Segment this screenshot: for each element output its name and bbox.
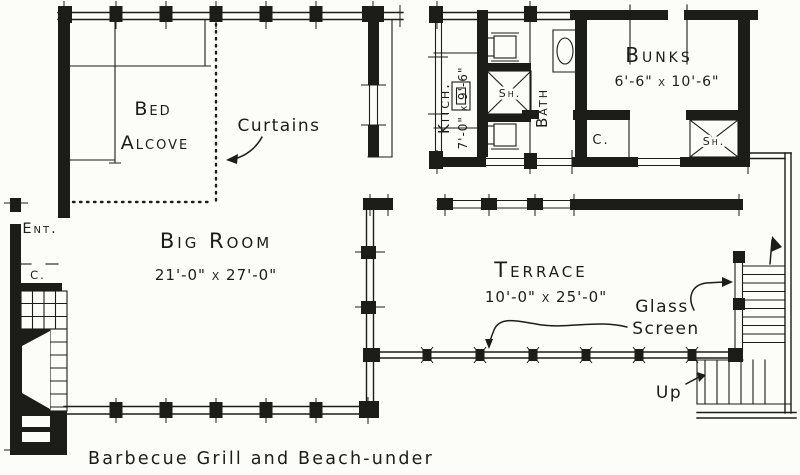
steps-to-beach [50, 329, 67, 411]
big-room: Big Room 21'-0" x 27'-0" [155, 229, 277, 284]
entry-closet-label: C. [30, 268, 46, 282]
grill-grid [21, 291, 67, 329]
kitchen-dims: 7'-0" x 9'-6" [456, 67, 470, 150]
bunks-closet-label: C. [592, 133, 609, 148]
big-room-south-wall [64, 397, 379, 424]
curtains-label: Curtains [237, 116, 320, 136]
stairs-lower-run [697, 360, 796, 418]
glass-screen-line [380, 347, 743, 363]
glass-screen-label-2: Screen [632, 319, 699, 339]
terrace-label: Terrace [493, 258, 588, 282]
glass-screen-posts [421, 347, 743, 363]
big-room-east-wall-upper [361, 10, 392, 157]
floor-plan-page: Bed Alcove Curtains [0, 0, 800, 475]
terrace-dims: 10'-0" x 25'-0" [485, 288, 607, 306]
glass-screen-arrow-left [489, 321, 627, 345]
terrace-north-wall [363, 194, 743, 216]
bunks-room: Bunks 6'-6" x 10'-6" C. Sh. [573, 5, 740, 157]
big-room-dims: 21'-0" x 27'-0" [155, 266, 277, 284]
caption: Barbecue Grill and Beach-under [88, 449, 434, 469]
up-annotation: Up [656, 372, 706, 403]
glass-screen-arrow-right [691, 282, 724, 310]
bed-alcove-room: Bed Alcove [68, 20, 211, 163]
bath-label: Bath [533, 88, 551, 128]
fireplace-barbecue [10, 283, 67, 455]
bed-alcove-label-1: Bed [134, 98, 171, 120]
stairs-upper-run [733, 153, 791, 413]
up-label: Up [656, 383, 682, 403]
toilet-symbol-1 [485, 33, 519, 61]
glass-screen-label-1: Glass [635, 297, 689, 317]
entry-label: Ent. [22, 221, 57, 237]
kitchen-label: Kitch. [435, 82, 453, 134]
terrace: Terrace 10'-0" x 25'-0" [485, 258, 607, 306]
floor-plan: Bed Alcove Curtains [0, 0, 800, 475]
bunks-dims: 6'-6" x 10'-6" [615, 74, 720, 90]
bed-alcove-label-2: Alcove [121, 132, 189, 154]
big-room-east-wall-lower [355, 210, 385, 414]
bath-shower-label: Sh. [499, 87, 522, 100]
entry-vestibule: Ent. C. [21, 221, 58, 282]
curtains-annotation: Curtains [226, 116, 321, 164]
bath-room: Sh. Bath [485, 30, 577, 149]
sink-symbol [553, 30, 577, 72]
bunks-shower-label: Sh. [703, 135, 726, 148]
entry-closet: C. [21, 264, 58, 282]
stairs-up-flag-icon [770, 236, 782, 264]
shower-symbol-bunks: Sh. [686, 110, 740, 157]
toilet-symbol-2 [485, 121, 519, 149]
north-wall-left-wing [58, 1, 403, 29]
big-room-label: Big Room [160, 229, 272, 253]
curtains-arrow [234, 137, 262, 159]
bunks-label: Bunks [625, 43, 693, 67]
